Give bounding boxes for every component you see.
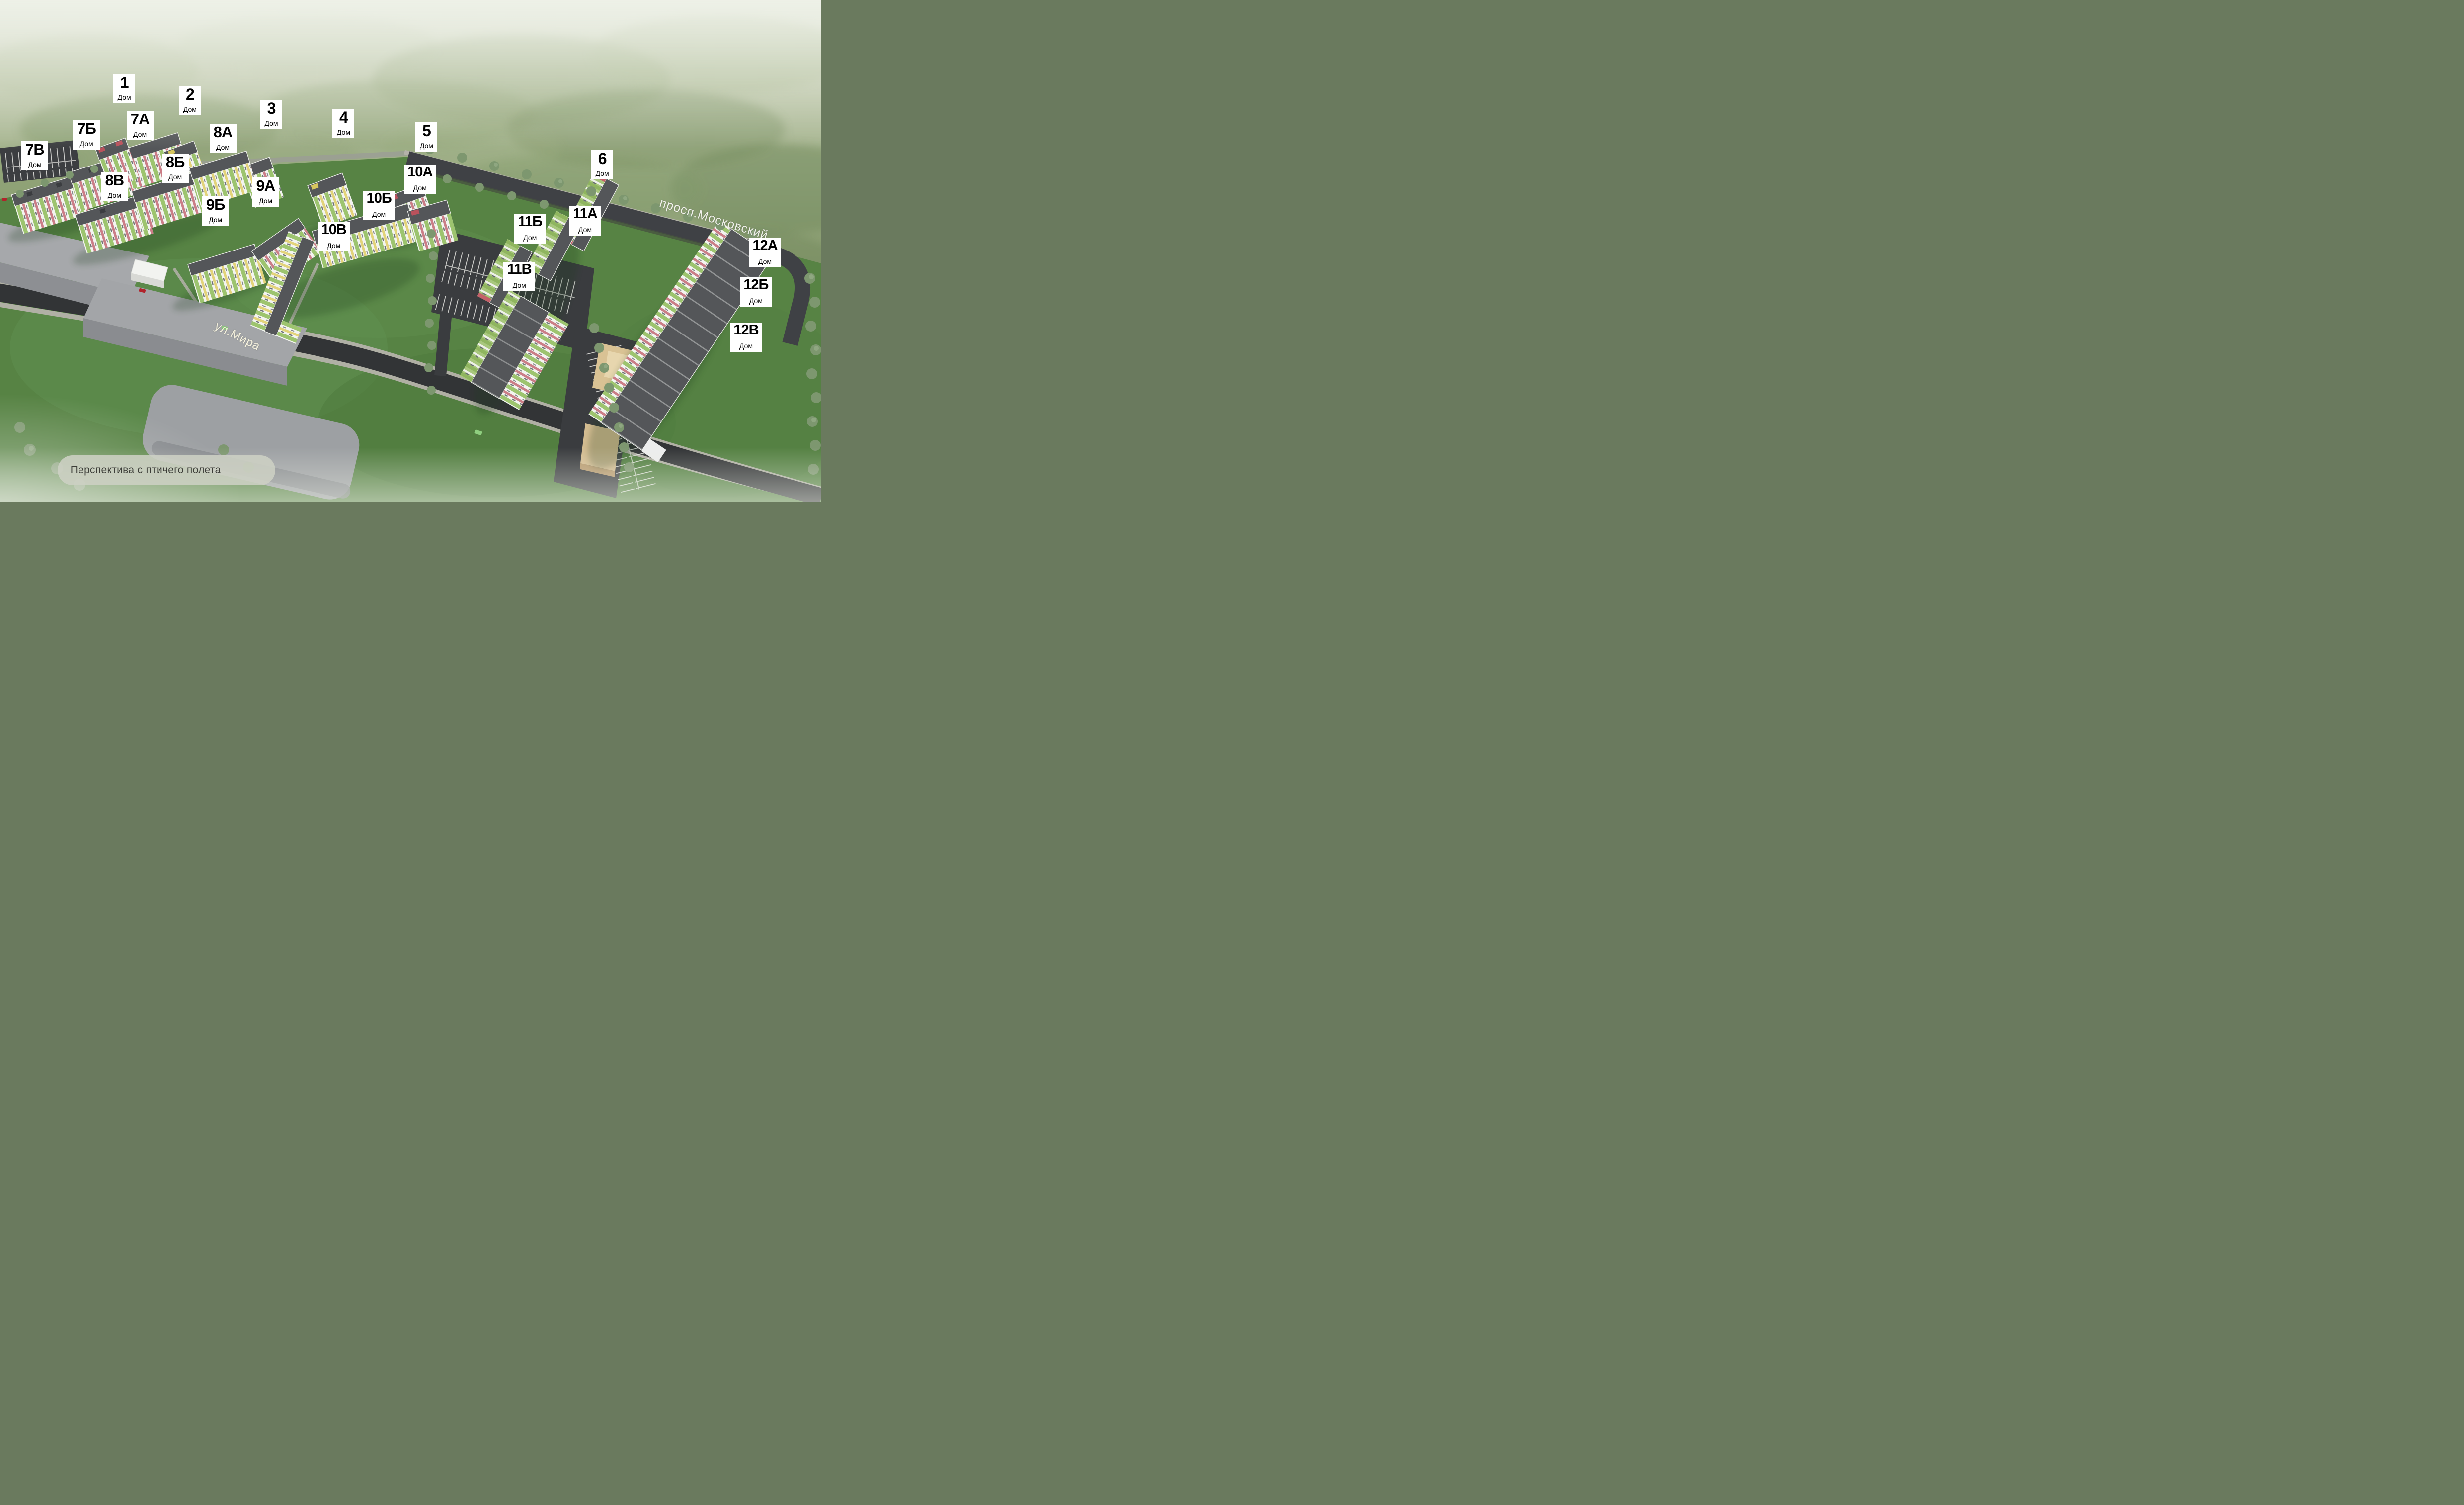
- building-label-10А: 10А Дом: [404, 165, 436, 194]
- building-number: 8Б: [166, 154, 185, 169]
- masterplan-render: .rf{fill:#545659;stroke:#edeeea;stroke-w…: [0, 0, 821, 502]
- view-caption: Перспектива с птичего полета: [58, 455, 275, 485]
- building-label-6: 6 Дом: [591, 150, 613, 179]
- building-number: 11В: [507, 262, 532, 277]
- building-label-8В: 8В Дом: [101, 172, 128, 201]
- building-label-12Б: 12Б Дом: [740, 277, 772, 307]
- building-house-word: Дом: [168, 173, 182, 180]
- building-house-word: Дом: [596, 170, 609, 177]
- building-labels-layer: 1 Дом 2 Дом 3 Дом 4 Дом 5 Дом 6 Дом 7А Д…: [0, 0, 821, 502]
- building-house-word: Дом: [209, 216, 222, 223]
- building-label-12В: 12В Дом: [730, 323, 762, 352]
- building-label-11Б: 11Б Дом: [514, 214, 546, 244]
- building-number: 2: [186, 86, 194, 102]
- building-house-word: Дом: [739, 342, 753, 349]
- building-house-word: Дом: [259, 197, 272, 204]
- building-number: 5: [422, 123, 431, 139]
- building-label-7А: 7А Дом: [127, 111, 154, 140]
- building-number: 11Б: [518, 215, 543, 229]
- building-house-word: Дом: [327, 242, 340, 249]
- building-number: 4: [339, 109, 348, 125]
- building-number: 1: [120, 75, 129, 90]
- building-house-word: Дом: [523, 234, 537, 241]
- building-label-10Б: 10Б Дом: [363, 191, 395, 220]
- building-number: 8А: [214, 124, 233, 140]
- building-number: 9А: [256, 178, 275, 193]
- building-number: 3: [267, 100, 276, 116]
- building-number: 7Б: [77, 121, 96, 136]
- building-house-word: Дом: [413, 184, 427, 191]
- building-number: 11А: [573, 207, 597, 221]
- building-house-word: Дом: [420, 142, 433, 149]
- building-label-8Б: 8Б Дом: [162, 154, 189, 183]
- building-number: 7В: [25, 142, 44, 157]
- building-label-7Б: 7Б Дом: [73, 120, 100, 150]
- building-number: 9Б: [206, 197, 225, 212]
- building-label-11А: 11А Дом: [569, 206, 601, 236]
- building-number: 10В: [321, 223, 346, 237]
- building-number: 10Б: [367, 191, 392, 206]
- building-house-word: Дом: [578, 226, 592, 233]
- building-house-word: Дом: [183, 106, 197, 113]
- building-number: 8В: [105, 172, 124, 188]
- building-house-word: Дом: [108, 192, 121, 199]
- building-label-4: 4 Дом: [332, 109, 354, 138]
- building-number: 10А: [407, 165, 432, 179]
- building-house-word: Дом: [372, 211, 386, 218]
- building-house-word: Дом: [28, 161, 41, 168]
- building-house-word: Дом: [80, 140, 93, 147]
- building-label-5: 5 Дом: [415, 122, 437, 152]
- building-house-word: Дом: [216, 144, 230, 151]
- building-house-word: Дом: [337, 129, 350, 136]
- building-number: 7А: [131, 111, 150, 127]
- building-label-7В: 7В Дом: [21, 141, 48, 170]
- building-label-10В: 10В Дом: [318, 222, 350, 251]
- building-number: 12В: [733, 323, 758, 337]
- building-label-3: 3 Дом: [260, 100, 282, 129]
- building-number: 12Б: [743, 278, 768, 292]
- building-label-1: 1 Дом: [113, 74, 135, 103]
- building-label-12А: 12А Дом: [749, 238, 781, 267]
- building-label-9Б: 9Б Дом: [202, 196, 229, 226]
- building-label-2: 2 Дом: [179, 86, 201, 115]
- building-house-word: Дом: [758, 258, 772, 265]
- building-house-word: Дом: [133, 131, 147, 138]
- building-number: 12А: [752, 239, 777, 253]
- building-house-word: Дом: [264, 120, 278, 127]
- building-label-11В: 11В Дом: [503, 262, 535, 291]
- building-label-9А: 9А Дом: [252, 177, 279, 207]
- building-label-8А: 8А Дом: [210, 124, 237, 153]
- building-number: 6: [598, 151, 607, 167]
- building-house-word: Дом: [118, 94, 131, 101]
- building-house-word: Дом: [513, 282, 526, 289]
- building-house-word: Дом: [749, 297, 763, 304]
